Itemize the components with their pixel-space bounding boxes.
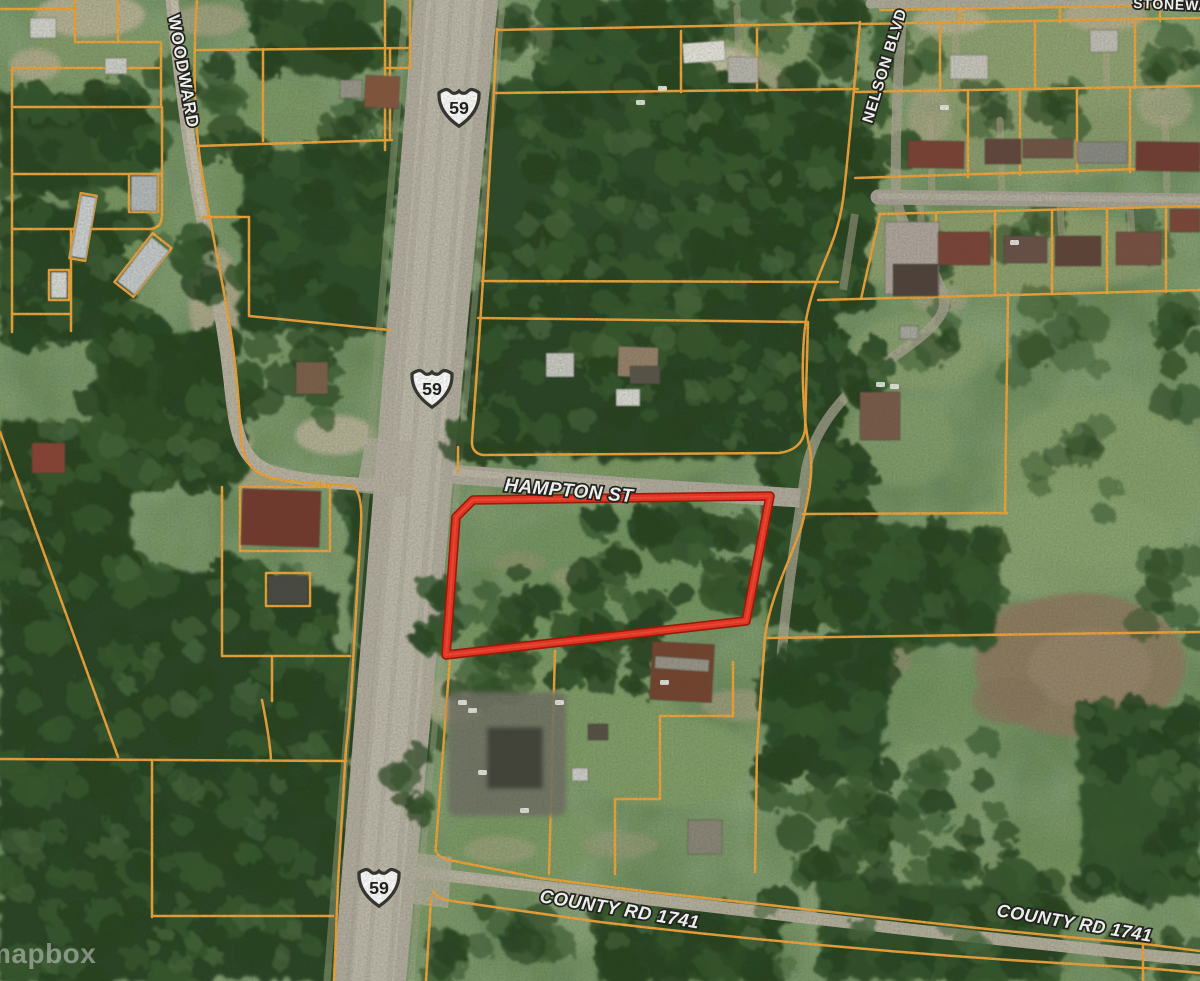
svg-text:mapbox: mapbox (0, 938, 96, 969)
